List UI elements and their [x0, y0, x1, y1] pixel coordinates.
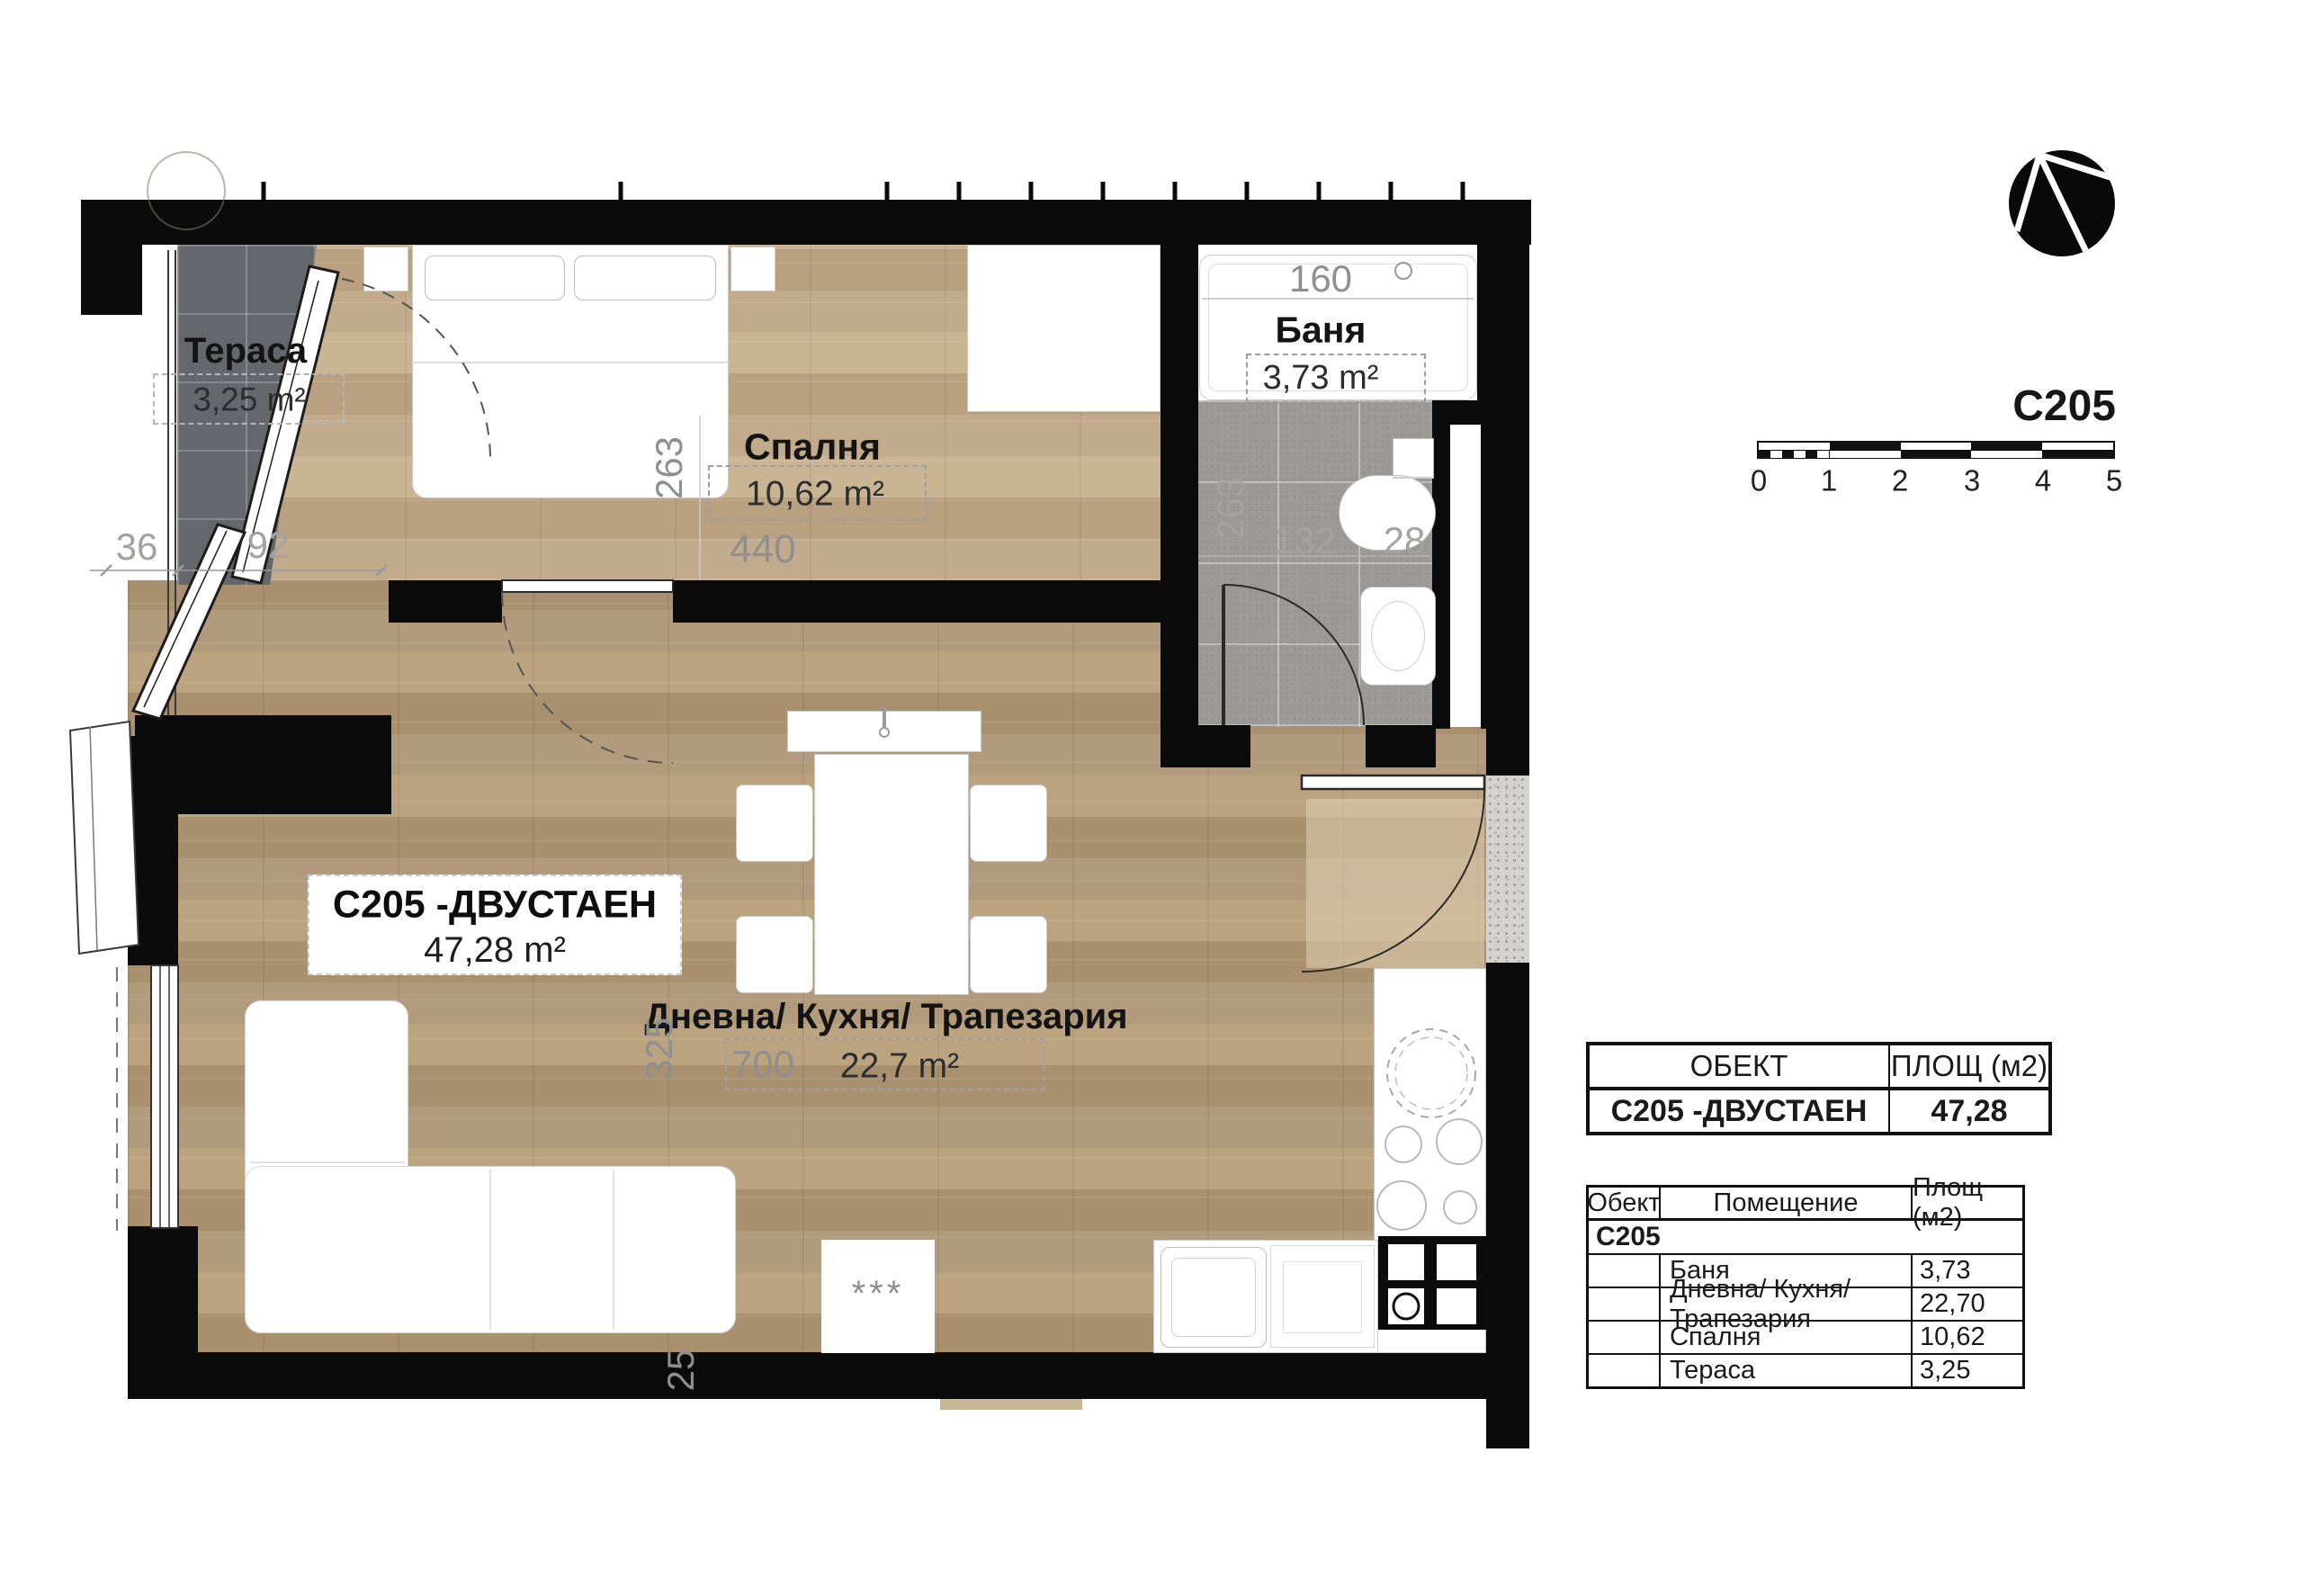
wall-terrace-bottom: [135, 715, 391, 814]
summary-table-row: C205 -ДВУСТАЕН 47,28: [1590, 1090, 2048, 1132]
dim-bedroom-width: 440: [730, 530, 795, 569]
kitchen-cabinet-inner: [1283, 1261, 1362, 1333]
terrace-area: 3,25 m²: [193, 383, 305, 417]
summary-table: ОБЕКТ ПЛОЩ (м2) C205 -ДВУСТАЕН 47,28: [1586, 1042, 2052, 1135]
scale-tick-1: 1: [1821, 466, 1837, 496]
wall-top: [81, 200, 1531, 245]
dim-bath-inner: 132: [1273, 522, 1336, 560]
kitchen-sink-basin: [1171, 1258, 1256, 1337]
kitchen-island: [787, 711, 981, 752]
dining-table: [814, 754, 969, 995]
toilet-tank: [1393, 438, 1434, 478]
rooms-table-row: Дневна/ Кухня/ Трапезария 22,70: [1589, 1287, 2022, 1320]
dim-bath-niche: 28: [1384, 522, 1426, 560]
nightstand: [363, 247, 408, 291]
chair: [736, 785, 813, 862]
terrace-label: Тераса: [184, 333, 307, 369]
sofa-seat: [245, 1166, 736, 1333]
wall-bathdoor-right: [1366, 725, 1436, 767]
rooms-col-area: Площ (м2): [1913, 1188, 2022, 1218]
unit-code: C205: [1925, 381, 2116, 431]
blanket-line: [412, 362, 729, 363]
logo: [2008, 149, 2116, 257]
entry-floor-patch: [1306, 799, 1484, 968]
nightstand: [730, 247, 775, 291]
dim-bedroom-depth: 263: [650, 436, 688, 499]
wall-bedroom-a: [389, 580, 502, 623]
apartment-title: C205 -ДВУСТАЕН: [333, 886, 657, 925]
kitchen-counter-right: [1374, 968, 1486, 1353]
dim-terrace-width: 92: [247, 526, 290, 564]
dim-wall-bottom: 25: [662, 1349, 700, 1392]
wall-top-left: [81, 245, 142, 315]
summary-table-header: ОБЕКТ ПЛОЩ (м2): [1590, 1045, 2048, 1090]
wardrobe: [967, 245, 1160, 412]
dim-living-depth: 325: [641, 1018, 678, 1080]
bath-sink-basin: [1371, 601, 1425, 671]
rooms-table-row: Тераса 3,25: [1589, 1353, 2022, 1386]
outside-corridor-floor: [1486, 776, 1529, 963]
pillow: [574, 256, 716, 300]
chair: [970, 916, 1047, 993]
room-area: 10,62: [1913, 1322, 2022, 1353]
summary-col-area: ПЛОЩ (м2): [1890, 1045, 2048, 1087]
dim-bath-width: 160: [1289, 260, 1352, 298]
rooms-table: Обект Помещение Площ (м2) C205 Баня 3,73…: [1586, 1185, 2025, 1389]
wall-bottom: [150, 1352, 1529, 1399]
rooms-table-row: Спалня 10,62: [1589, 1320, 2022, 1353]
scale-tick-3: 3: [1964, 466, 1980, 496]
scale-tick-2: 2: [1892, 466, 1908, 496]
wall-shaft-left: [1432, 423, 1450, 729]
living-label: Дневна/ Кухня/ Трапезария: [644, 999, 1127, 1035]
summary-row-name: C205 -ДВУСТАЕН: [1590, 1090, 1890, 1132]
wall-shaft-right: [1481, 423, 1490, 729]
threshold-strip: [940, 1397, 1082, 1410]
scale-tick-4: 4: [2035, 466, 2051, 496]
bedroom-label: Спалня: [744, 429, 881, 466]
rooms-table-header: Обект Помещение Площ (м2): [1589, 1188, 2022, 1221]
room-name: Дневна/ Кухня/ Трапезария: [1661, 1288, 1913, 1320]
chair: [970, 785, 1047, 862]
room-name: Спалня: [1661, 1322, 1913, 1353]
rug-stars: ***: [852, 1276, 905, 1312]
summary-col-object: ОБЕКТ: [1590, 1045, 1890, 1087]
living-area: 22,7 m²: [840, 1049, 959, 1084]
wall-bed-bath: [1160, 245, 1198, 729]
shaft-duct: [1450, 425, 1481, 727]
scale-tick-0: 0: [1751, 466, 1767, 496]
room-area: 3,25: [1913, 1355, 2022, 1386]
scale-bar: [1757, 441, 2115, 459]
dim-bath-depth: 263: [1212, 477, 1250, 540]
wall-tub-right: [1477, 200, 1529, 425]
wall-bedroom-b: [673, 580, 1198, 623]
room-area: 3,73: [1913, 1255, 2022, 1287]
summary-row-area: 47,28: [1890, 1090, 2048, 1132]
rooms-col-object: Обект: [1589, 1188, 1661, 1218]
bedroom-area: 10,62 m²: [746, 477, 884, 512]
rooms-col-room: Помещение: [1661, 1188, 1913, 1218]
bathroom-label: Баня: [1276, 312, 1367, 349]
apartment-area: 47,28 m²: [424, 932, 566, 968]
dim-living-width: 700: [731, 1045, 794, 1083]
wall-bathdoor-left: [1160, 725, 1250, 767]
plant: [147, 151, 226, 230]
chair: [736, 916, 813, 993]
dim-terrace-ledge: 36: [116, 528, 158, 566]
rooms-group-code: C205: [1589, 1221, 1661, 1253]
scale-tick-5: 5: [2106, 466, 2122, 496]
room-name: Тераса: [1661, 1355, 1913, 1386]
bathroom-area: 3,73 m²: [1263, 361, 1379, 395]
north-arrow-icon: [2008, 149, 2116, 257]
room-area: 22,70: [1913, 1288, 2022, 1320]
pillow: [425, 256, 565, 300]
